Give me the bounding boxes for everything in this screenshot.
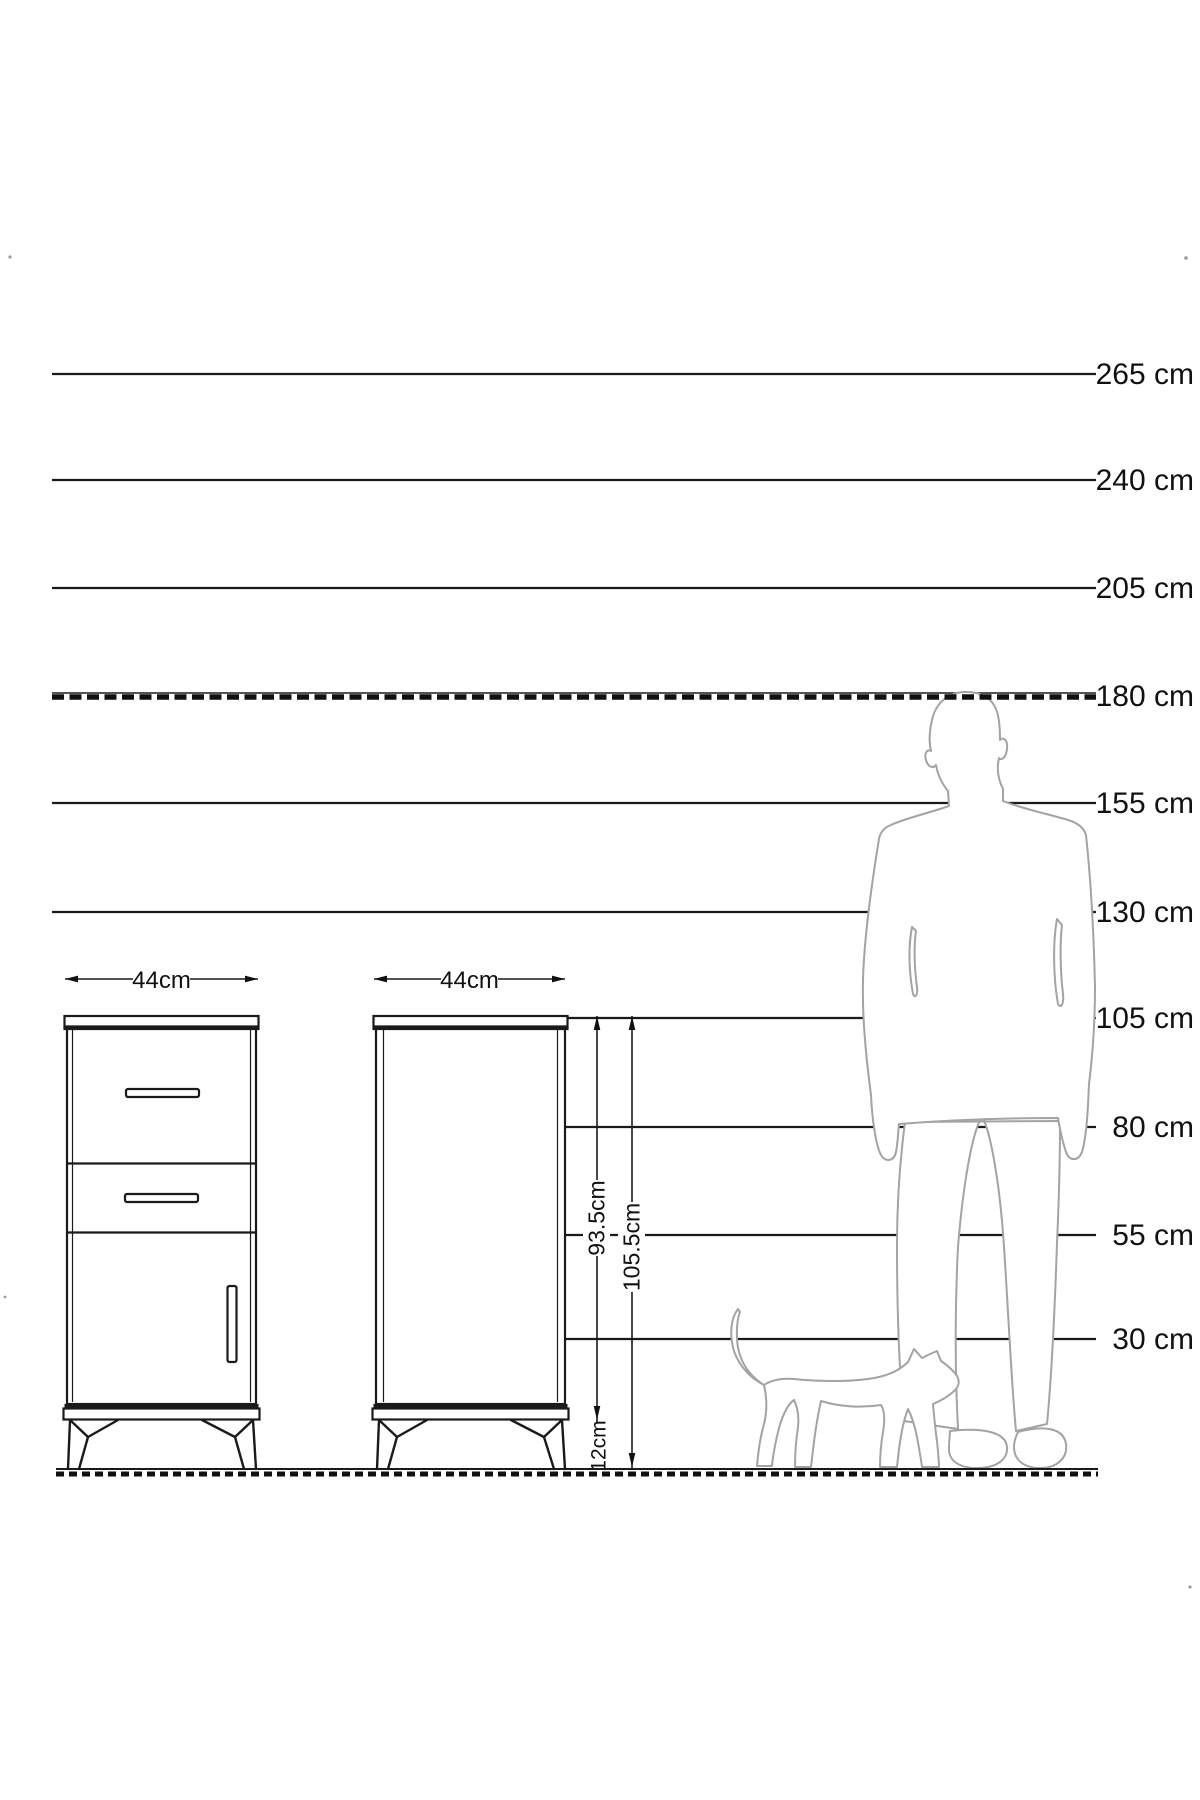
diagram-page: 44cm 44cm 93.5cm 12cm 105.5cm bbox=[0, 0, 1200, 1800]
scale-label-30: 30 cm bbox=[1112, 1323, 1194, 1356]
height-scale-labels: 265 cm240 cm205 cm180 cm155 cm130 cm105 … bbox=[1096, 358, 1194, 1356]
man-right-shoe bbox=[1014, 1428, 1066, 1468]
leg-height-label: 12cm bbox=[588, 1420, 611, 1471]
arrow-left-icon bbox=[65, 976, 78, 983]
front-width-label: 44cm bbox=[132, 967, 191, 994]
cabinet-front-view bbox=[64, 1016, 260, 1469]
scale-label-205: 205 cm bbox=[1096, 572, 1194, 605]
arrow-down-icon bbox=[594, 1406, 601, 1420]
man-silhouette bbox=[863, 692, 1095, 1468]
scale-label-55: 55 cm bbox=[1112, 1219, 1194, 1252]
scan-speck bbox=[1188, 1585, 1191, 1588]
man-left-shoe bbox=[949, 1430, 1007, 1468]
scale-label-155: 155 cm bbox=[1096, 787, 1194, 820]
scan-speck bbox=[8, 255, 11, 258]
door-handle bbox=[228, 1286, 237, 1362]
cabinet-side-panel bbox=[376, 1029, 565, 1404]
side-width-label: 44cm bbox=[440, 967, 499, 994]
cabinet-legs bbox=[68, 1420, 256, 1469]
body-height-dimension: 93.5cm 12cm bbox=[583, 1016, 611, 1472]
front-width-dimension: 44cm bbox=[65, 967, 258, 994]
cabinet-bottom-board bbox=[373, 1409, 569, 1420]
body-height-label: 93.5cm bbox=[584, 1180, 610, 1255]
scale-label-240: 240 cm bbox=[1096, 464, 1194, 497]
scan-speck bbox=[1184, 256, 1188, 260]
scale-label-80: 80 cm bbox=[1112, 1111, 1194, 1144]
scale-label-130: 130 cm bbox=[1096, 896, 1194, 929]
scan-speck bbox=[4, 1296, 7, 1299]
scale-label-265: 265 cm bbox=[1096, 358, 1194, 391]
diagram-canvas: 44cm 44cm 93.5cm 12cm 105.5cm bbox=[0, 0, 1200, 1800]
drawer-handle bbox=[126, 1089, 199, 1097]
cabinet-bottom-board bbox=[64, 1409, 260, 1420]
ground-line bbox=[56, 1469, 1098, 1474]
scale-label-180: 180 cm bbox=[1096, 680, 1194, 713]
arrow-right-icon bbox=[552, 976, 565, 983]
side-width-dimension: 44cm bbox=[374, 967, 565, 994]
cabinet-legs bbox=[377, 1420, 565, 1469]
drawer-handle bbox=[125, 1194, 198, 1202]
arrow-down-icon bbox=[629, 1453, 636, 1467]
arrow-left-icon bbox=[374, 976, 387, 983]
cabinet-side-view bbox=[373, 1016, 569, 1469]
total-height-label: 105.5cm bbox=[619, 1203, 645, 1291]
arrow-right-icon bbox=[245, 976, 258, 983]
total-height-dimension: 105.5cm bbox=[618, 1016, 645, 1468]
scale-label-105: 105 cm bbox=[1096, 1002, 1194, 1035]
